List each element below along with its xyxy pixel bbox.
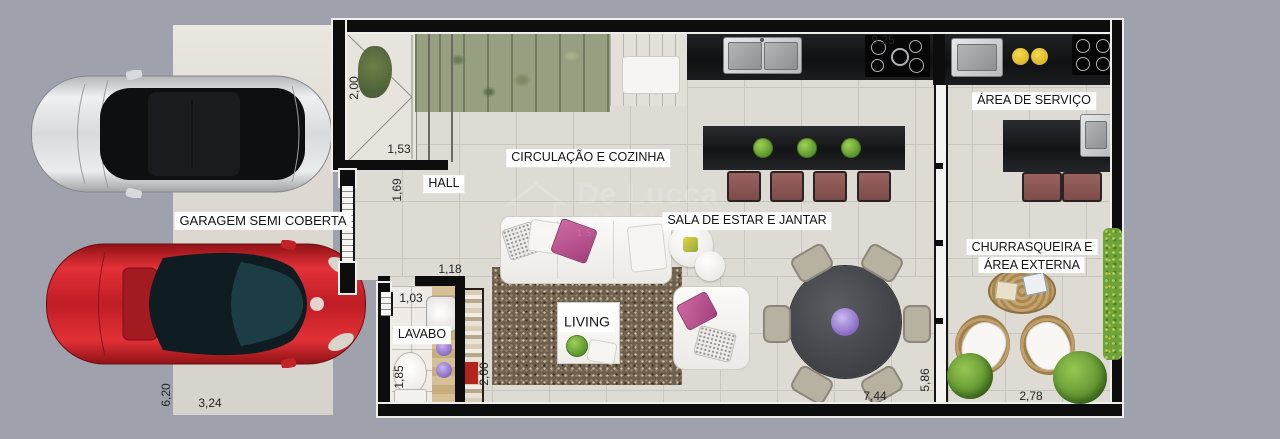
dim-hatch-width: 1,53 xyxy=(387,142,410,156)
lavabo-label: LAVABO xyxy=(393,326,451,344)
floor-plan: HALL CIRCULAÇÃO E COZINHA SALA DE ESTAR … xyxy=(333,18,1123,420)
book xyxy=(1022,272,1048,296)
bench-cushion xyxy=(622,56,680,94)
dim-divider-depth: 5,86 xyxy=(918,368,932,391)
sink-basin-left xyxy=(728,42,762,70)
dim-lavabo-width: 1,03 xyxy=(399,291,422,305)
burner-icon xyxy=(1076,39,1090,53)
hall-label: HALL xyxy=(423,175,464,193)
dim-hall-wall: 1,69 xyxy=(390,178,404,201)
window-cap-bottom xyxy=(340,263,355,293)
dim-cozinha-width: 9,25 xyxy=(871,33,894,47)
green-wall xyxy=(415,32,610,112)
churrasqueira-label: CHURRASQUEIRA E ÁREA EXTERNA xyxy=(967,238,1098,274)
bookshelf xyxy=(462,288,484,406)
burner-icon xyxy=(1076,57,1090,71)
floor-plan-scene: GARAGEM SEMI COBERTA 6,20 3,24 xyxy=(0,0,1280,439)
dim-externa-width: 2,78 xyxy=(1019,389,1042,403)
red-book xyxy=(464,362,478,384)
wall-hatch-bottom xyxy=(333,160,448,170)
churrasqueira-label-line2: ÁREA EXTERNA xyxy=(979,257,1085,273)
coffee-table-cushion xyxy=(586,339,617,366)
side-table-plant-icon xyxy=(683,237,698,252)
stool xyxy=(1062,172,1102,202)
door-track-1 xyxy=(428,32,430,162)
stool xyxy=(857,171,891,202)
dining-chair xyxy=(903,305,931,343)
lavabo-window xyxy=(379,292,393,316)
churrasqueira-label-line1: CHURRASQUEIRA E xyxy=(967,239,1098,255)
kitchen-island xyxy=(703,126,905,170)
bush xyxy=(1053,351,1107,404)
pillow-pink xyxy=(675,291,718,332)
burner-icon xyxy=(909,40,922,53)
service-sink-basin xyxy=(957,44,997,71)
service-grill-basin xyxy=(1085,121,1107,149)
dim-garagem-width: 3,24 xyxy=(198,396,221,410)
divider-window xyxy=(934,85,948,404)
door-track-2 xyxy=(451,32,453,162)
yellow-flower-icon xyxy=(1031,48,1048,65)
outdoor-coffee-table xyxy=(988,268,1056,314)
pillow-patterned xyxy=(693,325,737,363)
window-tick xyxy=(935,163,943,169)
window-tick xyxy=(935,318,943,324)
side-table xyxy=(695,251,725,281)
armchair xyxy=(673,286,750,370)
living-plant-icon xyxy=(566,335,588,357)
service-counter xyxy=(945,30,1122,85)
purple-flower-icon xyxy=(436,362,452,378)
book xyxy=(995,281,1018,302)
dim-garagem-depth: 6,20 xyxy=(159,383,173,406)
dining-centerpiece-icon xyxy=(831,308,859,336)
dim-lavabo-depth: 1,85 xyxy=(392,365,406,388)
living-label: LIVING xyxy=(559,312,615,332)
sink-basin-right xyxy=(764,42,798,70)
dim-living-wall: 2,00 xyxy=(477,362,491,385)
kitchen-counter xyxy=(687,30,935,80)
divider-wall xyxy=(933,30,945,85)
wall-bottom xyxy=(378,404,1122,416)
bush xyxy=(947,353,993,399)
burner-icon xyxy=(871,59,884,72)
wall-top xyxy=(333,20,1122,32)
stool xyxy=(1022,172,1062,202)
burner-icon xyxy=(1096,57,1110,71)
toilet-tank xyxy=(394,389,427,405)
island-plant-icon xyxy=(841,138,861,158)
watermark-name: De Lucca xyxy=(577,178,718,212)
hedge xyxy=(1103,228,1122,360)
area-servico-label: ÁREA DE SERVIÇO xyxy=(972,92,1096,110)
wall-left-upper xyxy=(333,20,345,170)
service-sink xyxy=(951,38,1003,77)
island-plant-icon xyxy=(797,138,817,158)
sala-estar-jantar-label: SALA DE ESTAR E JANTAR xyxy=(662,212,831,230)
faucet-icon xyxy=(760,38,764,42)
garagem-label: GARAGEM SEMI COBERTA xyxy=(174,212,351,230)
service-cooktop xyxy=(1072,35,1115,75)
yellow-flower-icon xyxy=(1012,48,1029,65)
circulacao-cozinha-label: CIRCULAÇÃO E COZINHA xyxy=(506,149,670,167)
window-cap-top xyxy=(340,170,355,186)
kitchen-sink xyxy=(723,37,802,74)
stool xyxy=(813,171,847,202)
dim-sala-width: 7,44 xyxy=(863,389,886,403)
burner-icon xyxy=(891,48,909,66)
wall-lavabo-right xyxy=(455,276,465,406)
dim-hall-opening: 1,18 xyxy=(438,262,461,276)
dim-hatch-height: 2,00 xyxy=(347,76,361,99)
dining-chair xyxy=(763,305,791,343)
window-tick xyxy=(935,240,943,246)
island-plant-icon xyxy=(753,138,773,158)
burner-icon xyxy=(909,58,924,73)
burner-icon xyxy=(1096,39,1110,53)
service-grill xyxy=(1080,114,1112,157)
dining-table xyxy=(789,266,901,378)
house-icon xyxy=(505,180,567,236)
